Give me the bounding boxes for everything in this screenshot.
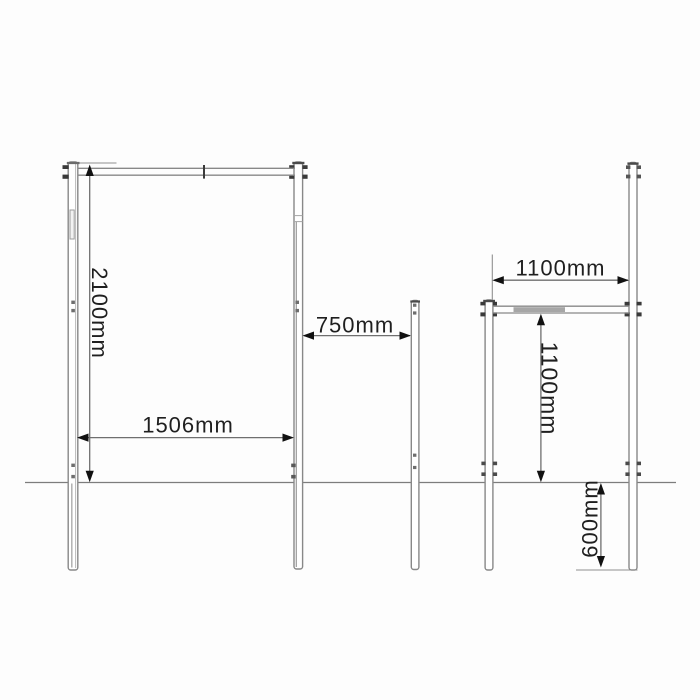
svg-text:2100mm: 2100mm	[87, 267, 112, 359]
svg-text:1506mm: 1506mm	[142, 413, 234, 438]
svg-text:600mm: 600mm	[578, 479, 603, 557]
svg-text:750mm: 750mm	[316, 313, 394, 338]
svg-text:1100mm: 1100mm	[516, 256, 606, 281]
svg-text:1100mm: 1100mm	[537, 342, 563, 436]
